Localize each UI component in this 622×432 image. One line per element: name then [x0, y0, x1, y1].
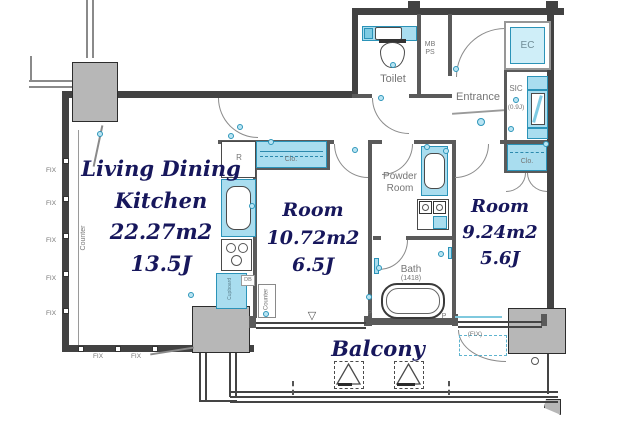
boundary-line — [92, 0, 94, 58]
pipe-label: P — [364, 310, 376, 318]
powder-line2: Room — [387, 183, 414, 194]
sic-label: SIC — [505, 84, 527, 93]
sic-size-label: (0.9J) — [502, 104, 530, 111]
boundary-line — [29, 86, 74, 88]
ldk-label: Living Dining Kitchen 22.27m2 13.5J — [78, 153, 244, 279]
room2-name: Room — [471, 196, 529, 217]
entrance-label: Entrance — [450, 91, 506, 104]
fixture-symbol-dot — [453, 66, 459, 72]
fixture-symbol-dot — [424, 144, 430, 150]
balcony-post-line — [547, 354, 549, 394]
bathtub-inner — [386, 288, 440, 314]
window-node — [63, 196, 69, 202]
window-node — [78, 346, 84, 352]
fix-label: FIX — [124, 353, 148, 360]
powder-room-label: Powder Room — [376, 171, 424, 194]
fix-paren-label: (FIX) — [460, 331, 490, 338]
fixture-symbol-dot — [390, 62, 396, 68]
fixture-symbol-dot — [543, 141, 549, 147]
door-arc-toilet — [372, 98, 409, 134]
fixture-symbol-dot — [513, 97, 519, 103]
ldk-counter-label: Counter — [80, 218, 88, 258]
window-line — [458, 326, 542, 328]
window-node — [152, 346, 158, 352]
balcony-railing — [230, 396, 558, 398]
fix-label: FIX — [40, 167, 62, 174]
down-triangle-marker: ▽ — [304, 310, 320, 323]
washer-circle — [422, 204, 429, 211]
hatch-caption-mark — [338, 383, 352, 386]
hatch-caption-mark — [397, 383, 415, 386]
room1-size: 6.5J — [292, 254, 334, 276]
room1-name: Room — [282, 199, 343, 221]
ldk-area: 22.27m2 — [110, 219, 213, 244]
window-stub — [541, 314, 547, 326]
fix-label: FIX — [86, 353, 110, 360]
window-node — [63, 271, 69, 277]
wall-top — [352, 8, 564, 15]
fix-label: FIX — [40, 275, 62, 282]
wall-mbps-right — [448, 14, 452, 76]
balcony-wall — [199, 353, 201, 402]
mb-ps-label: MB PS — [420, 41, 440, 57]
floor-plan: Cupboard DB Counter Living D — [0, 0, 622, 432]
balcony-divider-tick — [448, 381, 450, 395]
window-stub — [249, 316, 256, 328]
window-node — [63, 308, 69, 314]
window-node — [115, 346, 121, 352]
door-arc-room2 — [455, 144, 489, 178]
room1-label: Room 10.72m2 6.5J — [258, 197, 368, 280]
faucet-dot — [249, 203, 255, 209]
toilet-label: Toilet — [368, 73, 418, 86]
fixture-symbol-dot — [508, 126, 514, 132]
drain-circle — [531, 357, 539, 365]
bath-size-label: (1418) — [386, 275, 436, 283]
balcony-divider-tick — [292, 381, 294, 395]
fixture-symbol-dot — [378, 95, 384, 101]
room1-area: 10.72m2 — [267, 227, 360, 249]
fixture-symbol-dot — [477, 118, 485, 126]
balcony-railing — [230, 391, 558, 393]
fixture-symbol-dot — [97, 131, 103, 137]
boundary-line — [86, 0, 88, 58]
toilet-corner-box — [364, 28, 373, 39]
ec-label: EC — [504, 40, 551, 52]
wall-hall-top-b — [409, 94, 452, 98]
window-node — [63, 158, 69, 164]
pipe-label: P — [438, 313, 450, 321]
closet-room1-rod — [260, 151, 323, 152]
fixture-symbol-dot — [352, 147, 358, 153]
wall-top-vent — [408, 1, 420, 8]
pillar — [508, 308, 566, 354]
ldk-name: Living Dining Kitchen — [81, 156, 241, 213]
fix-label: FIX — [40, 200, 62, 207]
fixture-symbol-dot — [366, 294, 372, 300]
room2-area: 9.24m2 — [462, 222, 537, 243]
fixture-symbol-dot — [443, 148, 449, 154]
fixture-symbol-dot — [188, 292, 194, 298]
sic-cabinet-bottom — [527, 128, 548, 139]
balcony-wall — [205, 353, 207, 402]
window-node — [63, 233, 69, 239]
closet1-label: Clo. — [276, 156, 306, 164]
room2-size: 5.6J — [480, 248, 520, 269]
closet2-label: Clo. — [512, 158, 542, 166]
closet2-bifold-door — [506, 173, 526, 192]
wall-toilet-left — [352, 14, 358, 98]
fixture-symbol-dot — [438, 251, 444, 257]
room2-label: Room 9.24m2 5.6J — [452, 194, 548, 272]
boundary-line — [29, 80, 74, 82]
door-arc-ldk — [218, 98, 258, 138]
mb-label: MB — [425, 41, 436, 48]
window-line — [458, 321, 542, 323]
sic-cabinet-top — [527, 76, 548, 90]
wall-closet1-right — [327, 140, 330, 170]
fix-label: FIX — [40, 237, 62, 244]
closet2-bifold-door — [527, 173, 547, 192]
sliding-door-line — [256, 327, 366, 329]
wall-hall-top-a — [352, 94, 372, 98]
door-arc-room1 — [334, 144, 368, 178]
wall-bath-top-b — [406, 236, 452, 240]
washbasin — [424, 153, 445, 189]
fixture-symbol-dot — [376, 265, 382, 271]
fixture-symbol-dot — [263, 311, 269, 317]
ldk-size: 13.5J — [130, 251, 191, 276]
wall-top-vent — [546, 1, 558, 8]
balcony-railing — [230, 401, 558, 403]
pillar — [192, 306, 250, 353]
genkan-step-line — [452, 109, 504, 114]
fixture-symbol-dot — [237, 124, 243, 130]
closet-room2-rod-dashed — [510, 152, 544, 153]
wall-hall-bottom-c — [414, 140, 455, 144]
fix-window-cyan-line — [455, 316, 502, 318]
bath-label: Bath — [386, 264, 436, 276]
door-arc-entrance — [456, 28, 505, 77]
ps-label: PS — [425, 49, 434, 56]
fixture-symbol-dot — [228, 133, 234, 139]
fix-label: FIX — [40, 310, 62, 317]
pillar — [72, 62, 118, 122]
balcony-label: Balcony — [328, 336, 428, 361]
powder-line1: Powder — [383, 171, 417, 182]
washer-cyan-box — [433, 216, 447, 229]
boundary-line — [30, 56, 32, 82]
fixture-symbol-dot — [268, 139, 274, 145]
washer-circle — [436, 204, 443, 211]
refrigerator-label: R — [231, 153, 247, 162]
